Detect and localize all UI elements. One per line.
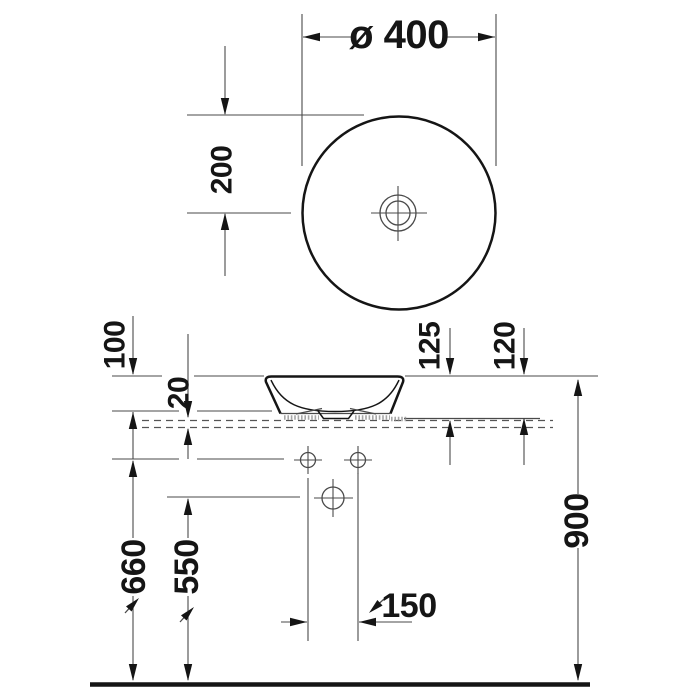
dimension-120: 120 xyxy=(489,322,529,465)
dimension-150: 150 xyxy=(281,473,437,641)
dimension-20: 20 xyxy=(163,334,196,459)
arrowhead-up xyxy=(129,412,137,429)
dim-label-120: 120 xyxy=(489,322,522,371)
basin-inner-bowl-curve xyxy=(271,380,399,412)
arrowhead-down xyxy=(574,664,582,681)
arrowhead-right xyxy=(290,618,307,626)
dimension-125: 125 xyxy=(414,322,455,465)
dim-label-20: 20 xyxy=(163,377,196,409)
arrowhead-down xyxy=(446,358,454,375)
arrowhead-right xyxy=(478,33,495,41)
arrowhead-up xyxy=(184,428,192,445)
drain-connection xyxy=(314,479,353,517)
dimension-100: 100 xyxy=(99,316,138,459)
arrowhead-left xyxy=(359,618,376,626)
arrowhead-up xyxy=(574,379,582,396)
dim-label-660: 660 xyxy=(115,539,153,594)
drain-plan xyxy=(371,186,427,241)
technical-drawing: ø 400 200 xyxy=(0,0,700,700)
arrowhead-down xyxy=(221,98,229,115)
top-view: ø 400 200 xyxy=(187,13,496,310)
arrowhead-up xyxy=(446,420,454,437)
arrowhead-up xyxy=(184,498,192,515)
dimension-550: 550 xyxy=(168,498,206,681)
supply-connection-left xyxy=(294,446,322,474)
dim-label-150: 150 xyxy=(381,587,436,625)
drawing-svg: ø 400 200 xyxy=(0,0,700,700)
dimension-660: 660 xyxy=(115,460,153,681)
dimension-900: 900 xyxy=(558,379,596,681)
arrowhead-down xyxy=(184,664,192,681)
dim-label-125: 125 xyxy=(414,322,447,371)
dimension-diameter: ø 400 xyxy=(303,13,495,57)
dimension-top-to-center: 200 xyxy=(206,46,239,276)
dim-label-550: 550 xyxy=(168,539,206,594)
dim-label-diameter: ø 400 xyxy=(349,13,449,57)
arrowhead-up xyxy=(129,460,137,477)
arrowhead-up xyxy=(221,213,229,230)
arrowhead-left xyxy=(303,33,320,41)
dim-label-center-distance: 200 xyxy=(206,146,239,195)
dim-label-100: 100 xyxy=(99,321,132,370)
dim-label-900: 900 xyxy=(558,493,596,548)
arrowhead-down xyxy=(129,664,137,681)
basin-profile xyxy=(266,377,408,420)
basin-outer-profile xyxy=(266,377,404,414)
side-view: 100 20 125 120 xyxy=(90,316,598,685)
supply-connection-right xyxy=(344,446,372,474)
